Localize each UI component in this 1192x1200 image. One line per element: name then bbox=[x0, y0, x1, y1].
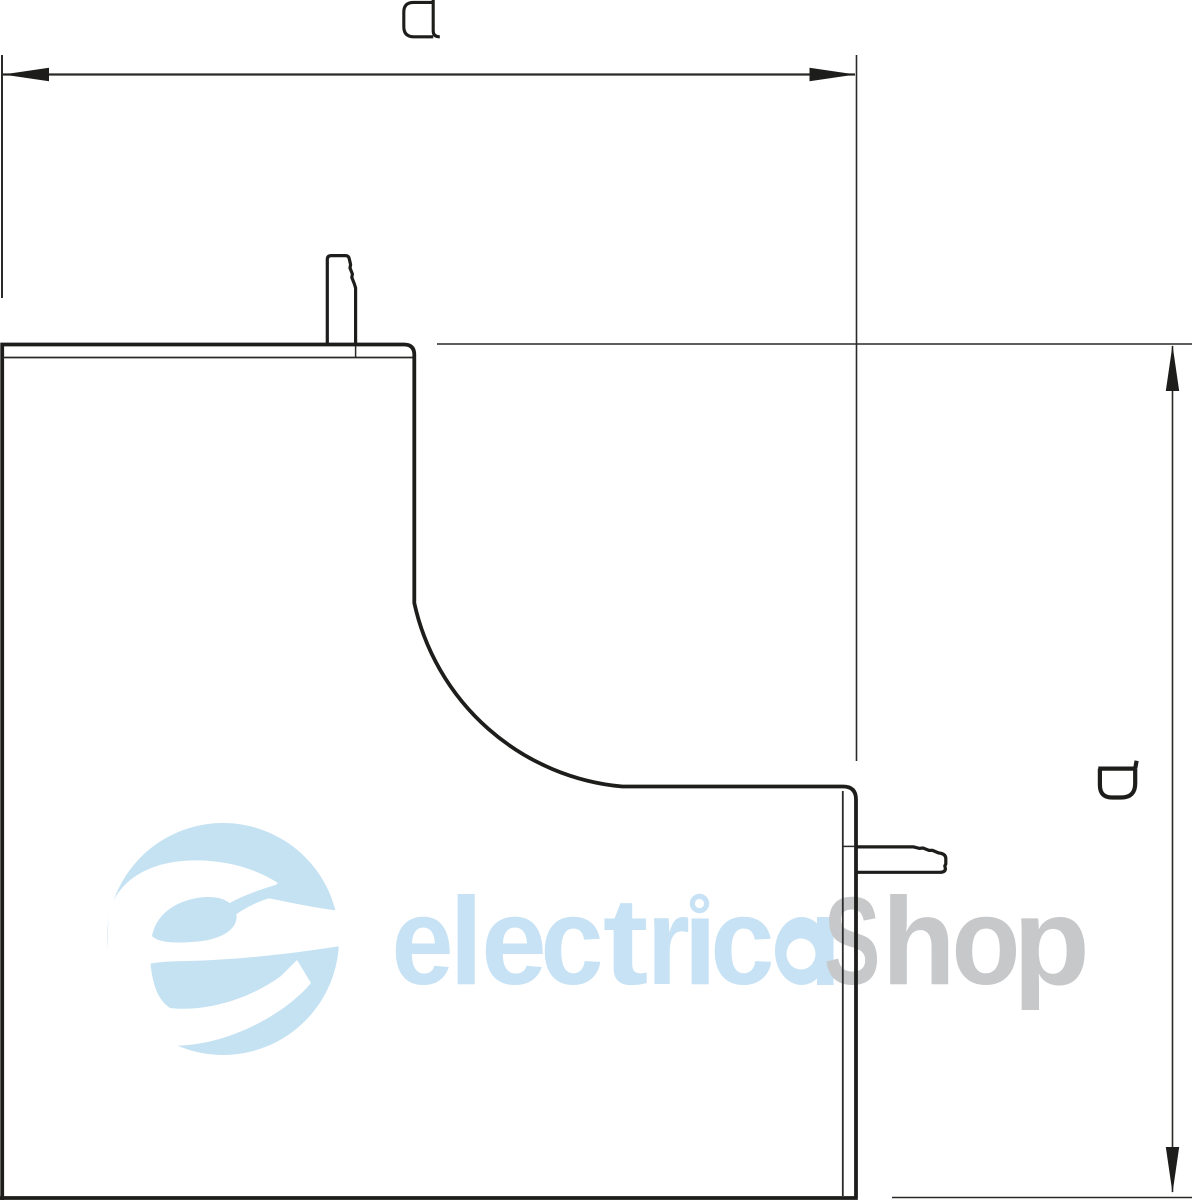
svg-text:c: c bbox=[540, 873, 603, 1011]
svg-text:l: l bbox=[449, 873, 483, 1011]
svg-text:p: p bbox=[1013, 873, 1090, 1011]
svg-text:t: t bbox=[603, 873, 649, 1011]
svg-text:e: e bbox=[392, 873, 454, 1011]
svg-text:c: c bbox=[710, 873, 774, 1011]
svg-text:e: e bbox=[481, 873, 547, 1011]
svg-text:S: S bbox=[824, 873, 880, 1011]
svg-text:h: h bbox=[882, 873, 956, 1011]
svg-text:o: o bbox=[952, 873, 1021, 1011]
